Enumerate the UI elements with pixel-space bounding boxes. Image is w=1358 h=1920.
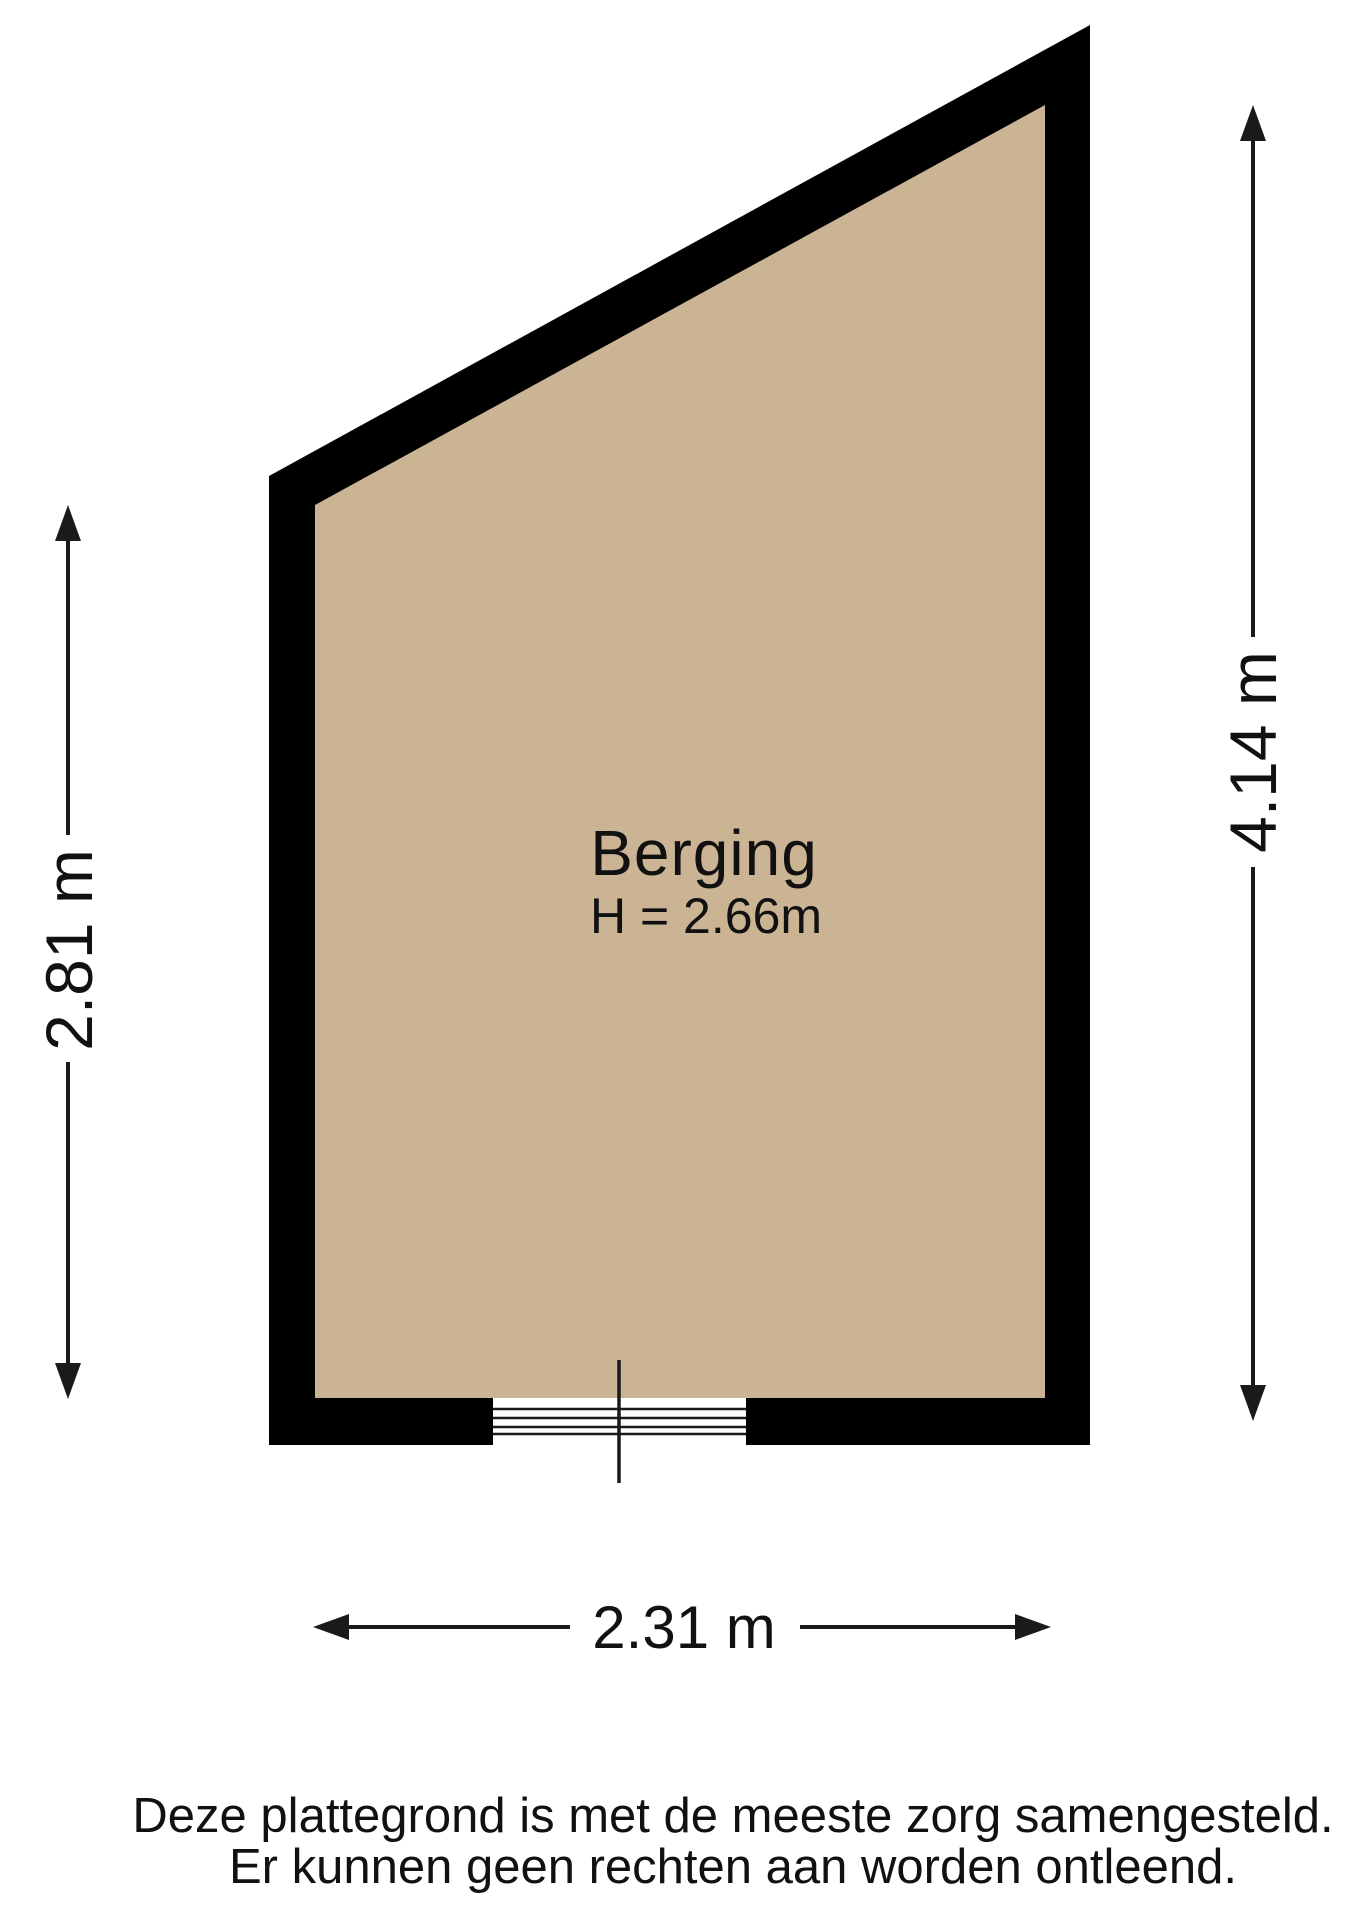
room-ceiling-height-label: H = 2.66m: [590, 888, 822, 944]
arrowhead-right-icon: [1015, 1614, 1051, 1640]
floor-plan-page: 2.81 m 4.14 m 2.31 m Berging H = 2.66m D…: [0, 0, 1358, 1920]
disclaimer-line-2: Er kunnen geen rechten aan worden ontlee…: [229, 1840, 1237, 1894]
arrowhead-up-icon: [1240, 105, 1266, 141]
floor-plan-canvas: 2.81 m 4.14 m 2.31 m Berging H = 2.66m D…: [0, 0, 1358, 1920]
arrowhead-left-icon: [313, 1614, 349, 1640]
dimension-bottom-label: 2.31 m: [592, 1594, 775, 1661]
arrowhead-down-icon: [55, 1363, 81, 1399]
dimension-right-label: 4.14 m: [1216, 651, 1290, 853]
arrowhead-down-icon: [1240, 1385, 1266, 1421]
dimension-left-label: 2.81 m: [32, 849, 106, 1051]
arrowhead-up-icon: [55, 505, 81, 541]
disclaimer-line-1: Deze plattegrond is met de meeste zorg s…: [132, 1789, 1333, 1843]
room-name-label: Berging: [590, 817, 818, 889]
